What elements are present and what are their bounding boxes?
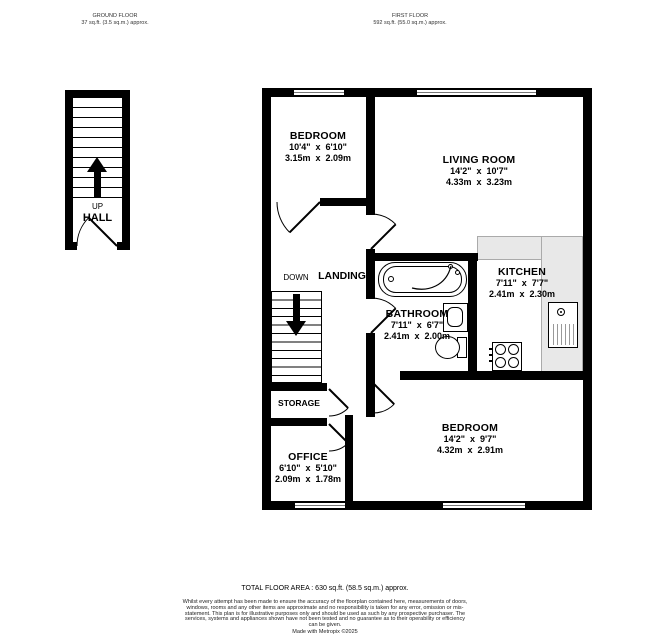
bedroom2-door-arc (373, 404, 394, 413)
storage-door-arc (329, 408, 348, 416)
ground-floor-header: GROUND FLOOR 37 sq.ft. (3.5 sq.m.) appro… (55, 13, 175, 26)
floorplan-canvas: GROUND FLOOR 37 sq.ft. (3.5 sq.m.) appro… (0, 0, 650, 635)
room-dim-imperial: 6'10" x 5'10" (253, 463, 363, 474)
first-floor-area: 592 sq.ft. (55.0 sq.m.) approx. (350, 20, 470, 27)
total-floor-area: TOTAL FLOOR AREA : 630 sq.ft. (58.5 sq.m… (0, 585, 650, 592)
up-label: UP (73, 202, 122, 211)
living-room-door-arc (371, 214, 396, 224)
room-dim-imperial: 7'11" x 7'7" (467, 278, 577, 289)
room-name: KITCHEN (467, 267, 577, 278)
bathroom-label: BATHROOM 7'11" x 6'7" 2.41m x 2.00m (362, 309, 472, 342)
bedroom2-label: BEDROOM 14'2" x 9'7" 4.32m x 2.91m (390, 423, 550, 456)
first-floor-header: FIRST FLOOR 592 sq.ft. (55.0 sq.m.) appr… (350, 13, 470, 26)
office-door-leaf (329, 424, 348, 443)
room-dim-imperial: 10'4" x 6'10" (262, 142, 374, 153)
disclaimer-text: Whilst every attempt has been made to en… (180, 600, 470, 629)
bathroom-door-arc (371, 298, 396, 308)
room-dim-metric: 4.33m x 3.23m (399, 177, 559, 188)
room-name: LIVING ROOM (399, 155, 559, 166)
room-dim-metric: 3.15m x 2.09m (262, 153, 374, 164)
shower-hose-icon (412, 266, 451, 289)
bedroom2-door-leaf (373, 383, 394, 404)
living-room-label: LIVING ROOM 14'2" x 10'7" 4.33m x 3.23m (399, 155, 559, 188)
room-dim-metric: 4.32m x 2.91m (390, 445, 550, 456)
bedroom1-label: BEDROOM 10'4" x 6'10" 3.15m x 2.09m (262, 131, 374, 164)
room-name: OFFICE (253, 452, 363, 463)
kitchen-label: KITCHEN 7'11" x 7'7" 2.41m x 2.30m (467, 267, 577, 300)
down-label: DOWN (276, 273, 316, 282)
room-dim-metric: 2.09m x 1.78m (253, 474, 363, 485)
room-dim-metric: 2.41m x 2.00m (362, 331, 472, 342)
room-dim-imperial: 7'11" x 6'7" (362, 320, 472, 331)
ground-floor-area: 37 sq.ft. (3.5 sq.m.) approx. (55, 20, 175, 27)
office-door-arc (329, 443, 348, 451)
room-dim-imperial: 14'2" x 10'7" (399, 166, 559, 177)
credit-text: Made with Metropix ©2025 (0, 629, 650, 635)
room-name: BEDROOM (390, 423, 550, 434)
bedroom1-door-leaf (290, 202, 320, 232)
room-dim-imperial: 14'2" x 9'7" (390, 434, 550, 445)
room-name: BATHROOM (362, 309, 472, 320)
room-name: BEDROOM (262, 131, 374, 142)
storage-label: STORAGE (263, 398, 335, 408)
room-dim-metric: 2.41m x 2.30m (467, 289, 577, 300)
office-label: OFFICE 6'10" x 5'10" 2.09m x 1.78m (253, 452, 363, 485)
bedroom1-door-arc (277, 202, 290, 232)
doors-overlay (0, 0, 650, 635)
living-room-door-leaf (371, 224, 396, 249)
hall-label: HALL (73, 212, 122, 224)
